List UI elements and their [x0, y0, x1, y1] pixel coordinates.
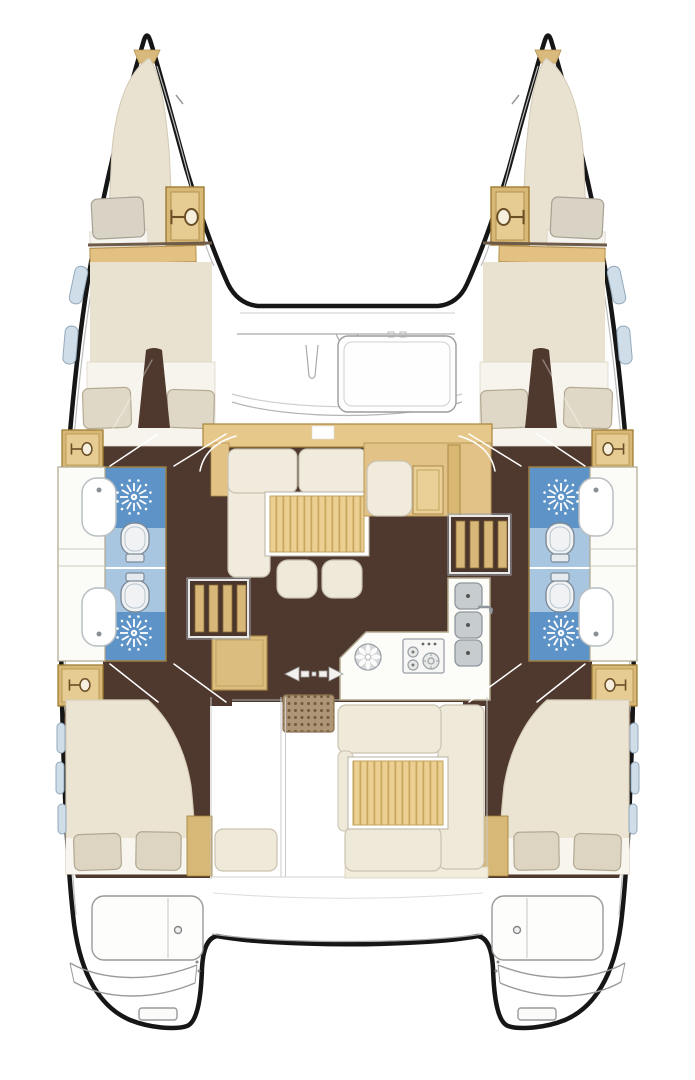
sofa-wood-arm [211, 443, 229, 496]
port-basin-fwd [82, 478, 116, 536]
stbd-aft-pillow-2 [514, 832, 560, 871]
cockpit-port-bench [215, 829, 277, 871]
hull-window-icon [629, 804, 637, 834]
step-tread [498, 521, 507, 568]
drain-icon [466, 594, 470, 598]
hull-window-icon [56, 762, 64, 794]
drain-icon [97, 632, 102, 637]
stbd-fwd-bed-base [483, 262, 605, 362]
starboard-bathrooms [529, 467, 637, 661]
shower-drain-sunburst-icon [543, 479, 579, 515]
l-sofa-back-cushion-1 [228, 449, 297, 493]
port-bow-berth-area [88, 50, 212, 264]
step-tread [237, 585, 246, 632]
stbd-fwd-pillow-inboard [480, 389, 528, 429]
salon-table-top [270, 496, 364, 552]
step-tread [223, 585, 232, 632]
port-bow-step [90, 246, 196, 265]
catamaran-floor-plan [0, 0, 695, 1080]
drain-icon [97, 488, 102, 493]
cockpit-sofa-bottom [345, 827, 441, 871]
port-bathrooms [58, 467, 166, 661]
step-tread [484, 521, 493, 568]
port-aft-pillow-2 [136, 832, 182, 871]
cockpit-table-top [353, 761, 443, 825]
step-tread [456, 521, 465, 568]
starboard-bow-step [499, 246, 605, 265]
hull-window-icon [616, 326, 632, 365]
starboard-bow-bulkhead [483, 243, 607, 245]
stove-burners-icon [403, 639, 444, 673]
port-bow-pillow [91, 197, 145, 240]
step-tread [195, 585, 204, 632]
doormat-icon [283, 695, 334, 732]
drain-icon [466, 623, 470, 627]
hull-window-icon [57, 723, 65, 753]
shower-drain-sunburst-icon [116, 615, 152, 651]
starboard-bow-pillow [550, 197, 604, 240]
companionway-steps-port [187, 578, 250, 639]
hull-window-icon [58, 804, 66, 834]
mast-post-gap [312, 426, 334, 439]
salon-aft-cabinet [212, 636, 267, 690]
port-aft-corner-cabinet [187, 816, 212, 876]
companionway-steps-starboard [448, 514, 511, 575]
starboard-bow-berth-area [483, 50, 607, 264]
shower-drain-sunburst-icon [543, 615, 579, 651]
stbd-basin-fwd [579, 478, 613, 536]
port-fwd-bed-base [90, 262, 212, 362]
foredeck-hatch [338, 332, 456, 412]
nav-locker-door [448, 445, 460, 516]
l-sofa-back-cushion-2 [299, 449, 367, 493]
port-aft-pillow-1 [73, 833, 121, 871]
drain-icon [466, 651, 470, 655]
engine-hatch-circle-icon [175, 927, 182, 934]
shower-drain-sunburst-icon [116, 479, 152, 515]
ottoman-2 [322, 560, 362, 598]
hull-window-icon [62, 326, 78, 365]
engine-hatch-circle-icon [514, 927, 521, 934]
ottoman-1 [277, 560, 317, 598]
stbd-basin-aft [579, 588, 613, 646]
port-bow-bulkhead [88, 243, 212, 245]
port-basin-aft [82, 588, 116, 646]
drain-icon [594, 632, 599, 637]
step-tread [470, 521, 479, 568]
nav-seat [367, 461, 412, 516]
port-fwd-pillow-inboard [166, 389, 214, 429]
hull-window-icon [631, 762, 639, 794]
cockpit-sofa-top [338, 705, 441, 753]
floor-plan-canvas [0, 0, 695, 1080]
stbd-aft-pillow-1 [573, 833, 621, 871]
faucet-icon [489, 608, 493, 612]
drain-icon [594, 488, 599, 493]
step-tread [209, 585, 218, 632]
hull-window-icon [630, 723, 638, 753]
vent-fan-icon [355, 644, 381, 670]
